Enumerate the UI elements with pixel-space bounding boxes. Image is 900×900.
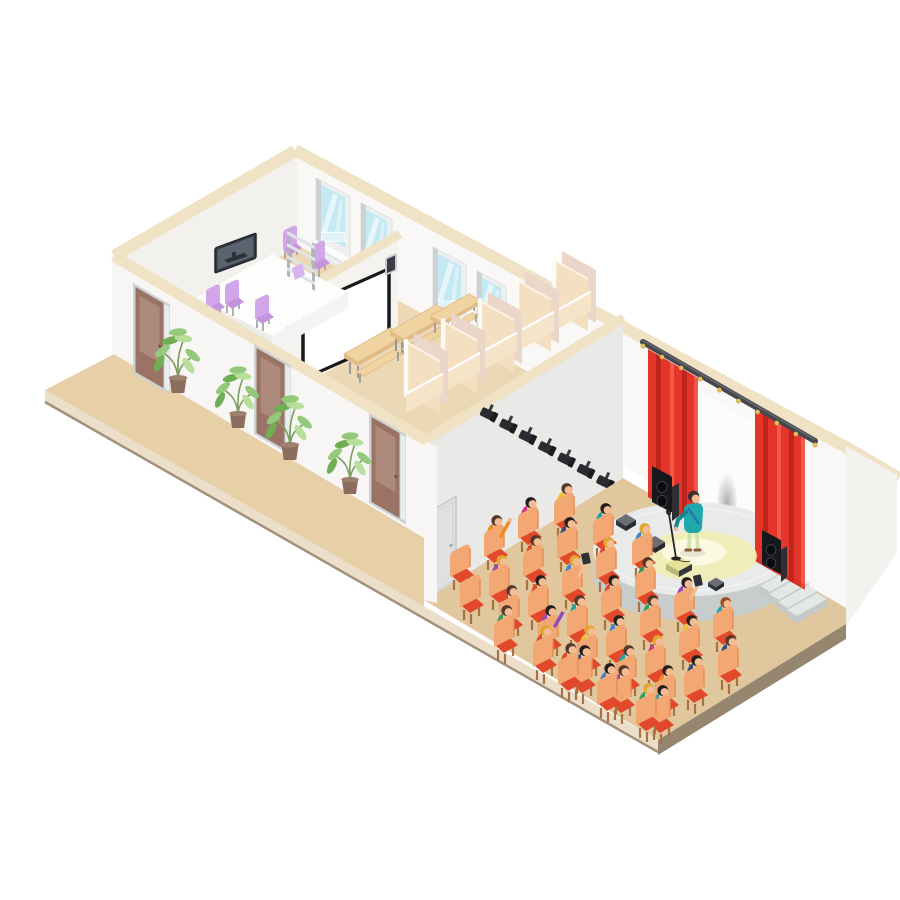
curtain-ring xyxy=(717,388,721,392)
curtain-ring xyxy=(794,432,798,436)
curtain-ring xyxy=(641,344,645,348)
curtain-ring xyxy=(775,421,779,425)
illustration-canvas xyxy=(0,0,900,900)
curtain-ring xyxy=(813,443,817,447)
isometric-scene xyxy=(0,0,900,900)
curtain-ring xyxy=(679,366,683,370)
curtain-ring xyxy=(660,355,664,359)
curtain-ring xyxy=(736,399,740,403)
front-wall-end xyxy=(424,440,437,603)
curtain-ring xyxy=(755,410,759,414)
curtain-ring xyxy=(698,377,702,381)
